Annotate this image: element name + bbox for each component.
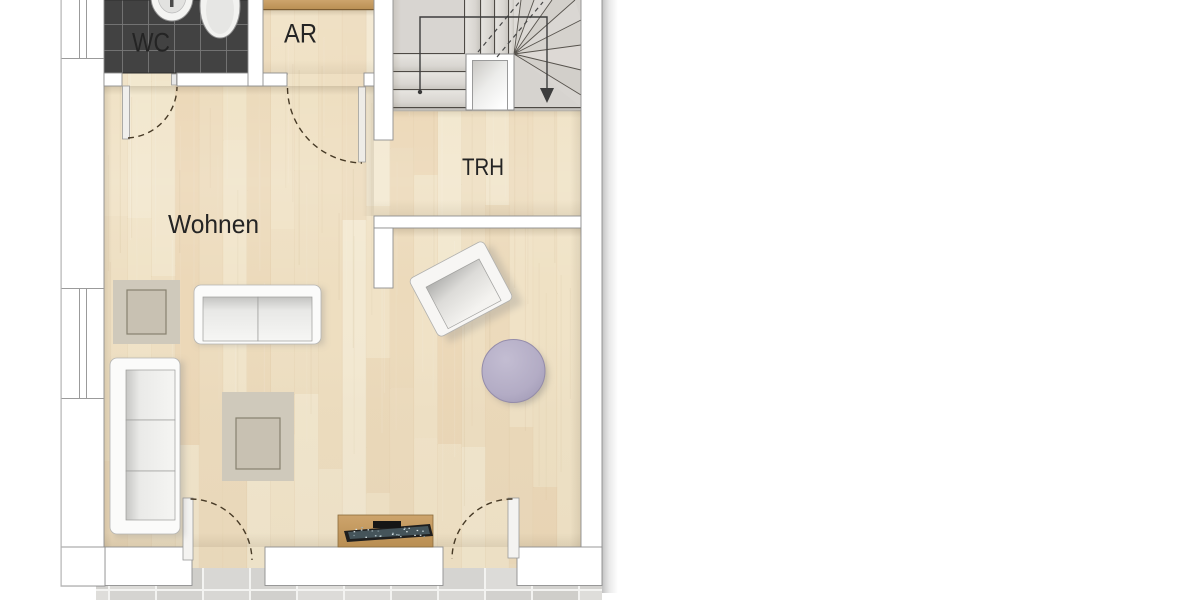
- svg-text:AR: AR: [284, 19, 317, 49]
- svg-text:TRH: TRH: [462, 154, 504, 181]
- svg-text:Wohnen: Wohnen: [168, 209, 259, 239]
- svg-text:WC: WC: [132, 28, 170, 58]
